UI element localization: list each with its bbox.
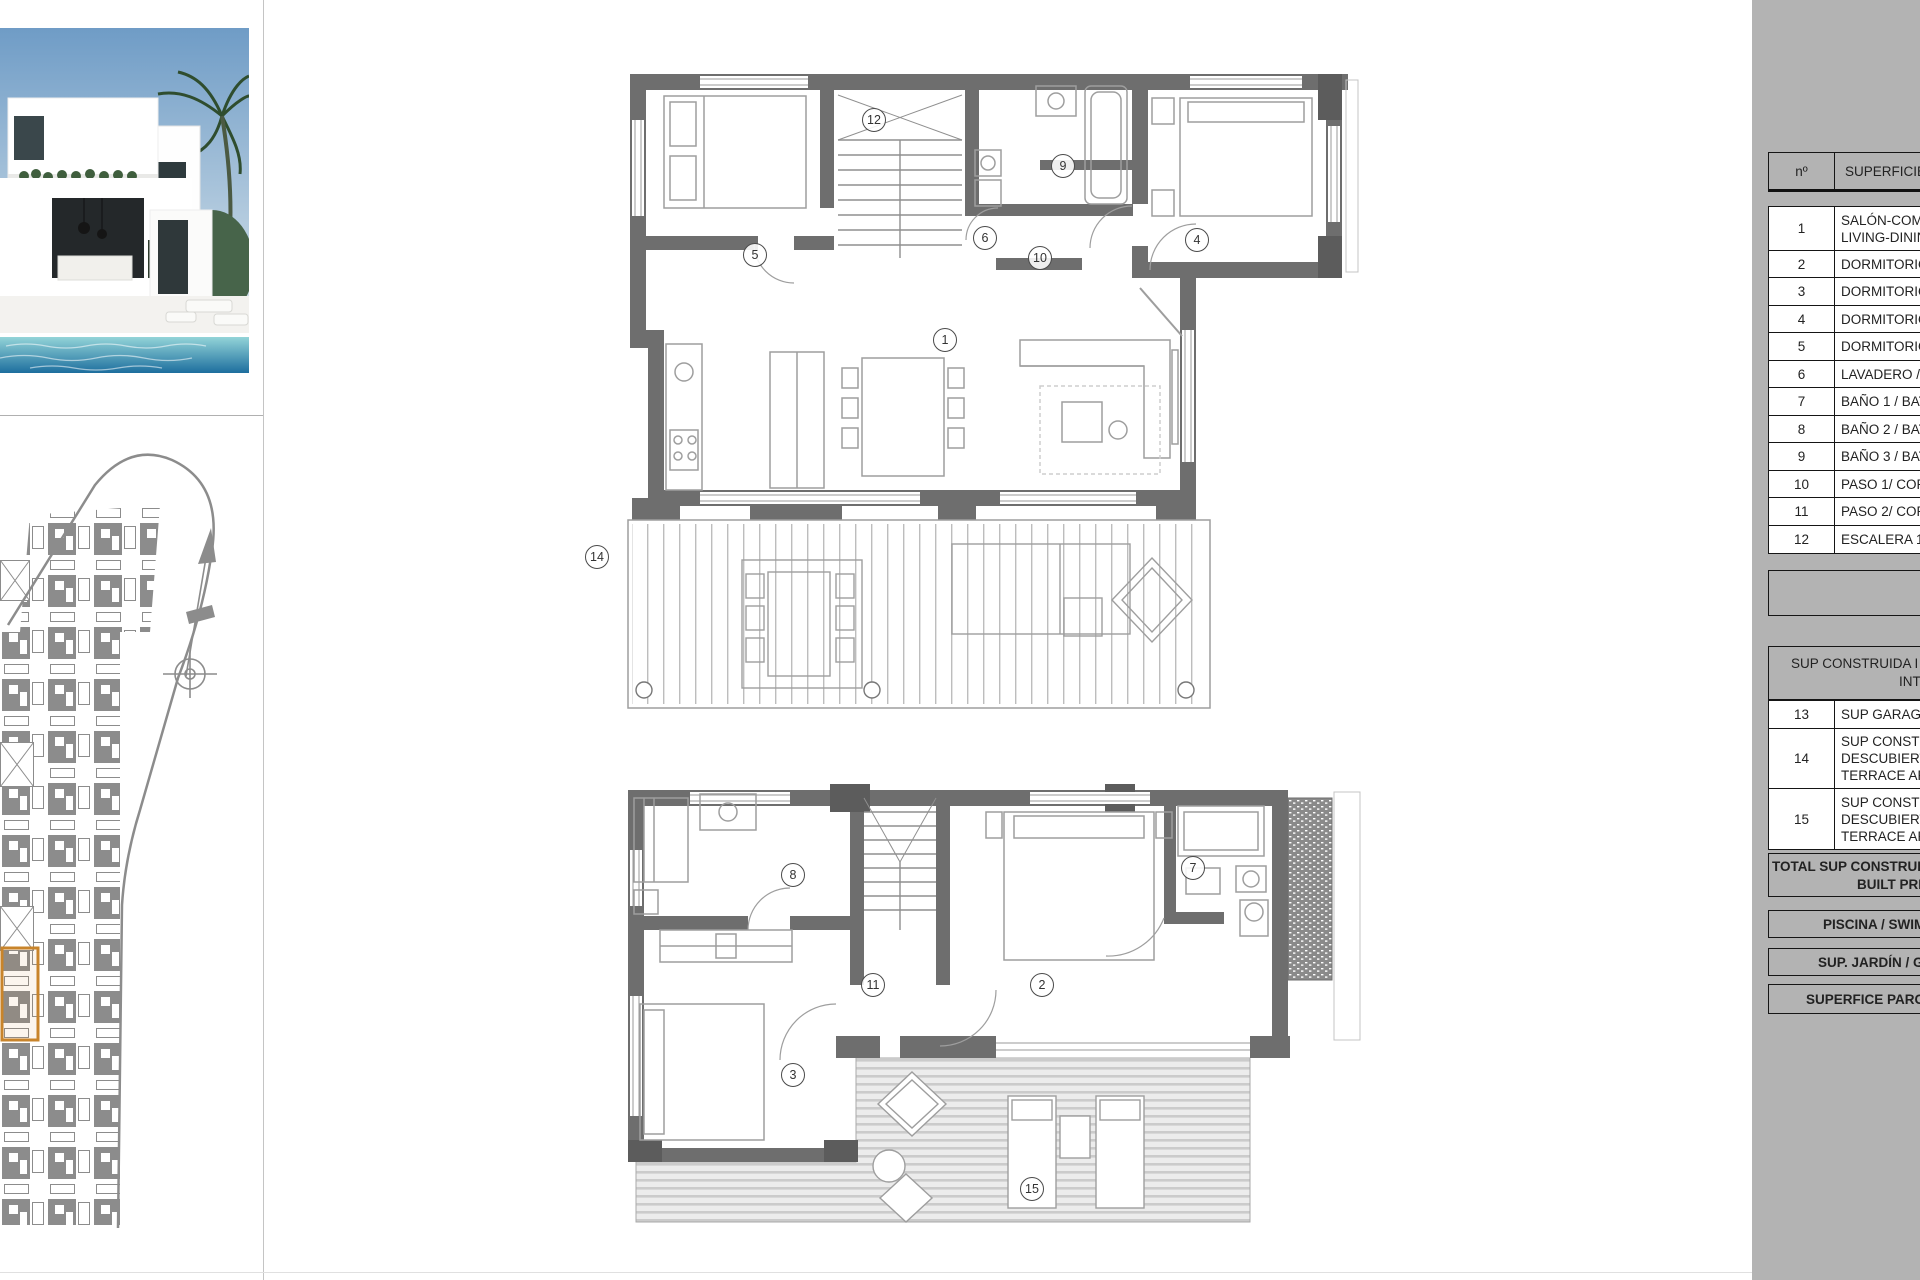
table-row: 2 DORMITORIO	[1768, 250, 1920, 279]
total-line2: BUILT PRIVA	[1769, 876, 1920, 894]
room-label-10: 10	[1028, 246, 1052, 270]
upper-windows	[632, 76, 1358, 504]
row-label: LAVADERO /	[1841, 366, 1920, 383]
room-label-11: 11	[861, 973, 885, 997]
upper-floor-plan	[600, 60, 1370, 720]
row-num: 6	[1769, 361, 1835, 388]
row-num: 5	[1769, 333, 1835, 360]
row-num: 11	[1769, 498, 1835, 525]
row-label: SUP CONSTRU	[1841, 794, 1920, 811]
row-num: 3	[1769, 278, 1835, 305]
row-label: SUP GARAGE	[1841, 706, 1920, 723]
row-label-2: LIVING-DININ	[1841, 229, 1920, 246]
garden-band: SUP. JARDÍN / G	[1768, 948, 1920, 976]
row-label-3: TERRACE ARE	[1841, 828, 1920, 845]
plot-band-label: SUPERFICE PARCE	[1769, 992, 1920, 1007]
table-row: 6 LAVADERO /	[1768, 360, 1920, 389]
row-label: ESCALERA 1 /	[1841, 531, 1920, 548]
room-label-5: 5	[743, 243, 767, 267]
row-num: 12	[1769, 526, 1835, 553]
row-label: DORMITORIO	[1841, 283, 1920, 300]
pool-band-label: PISCINA / SWIM	[1769, 917, 1920, 932]
row-label-3: TERRACE ARE	[1841, 767, 1920, 784]
table-spacer-band	[1768, 570, 1920, 616]
garden-band-label: SUP. JARDÍN / G	[1769, 955, 1920, 970]
row-num: 13	[1769, 701, 1835, 728]
row-label-2: DESCUBIERTA	[1841, 750, 1920, 767]
table-row: 9 BAÑO 3 / BAT	[1768, 442, 1920, 471]
right-panel	[1752, 0, 1920, 1280]
table-header: nº SUPERFICIE Ú	[1768, 152, 1920, 192]
room-label-3: 3	[781, 1063, 805, 1087]
row-num: 1	[1769, 207, 1835, 250]
room-label-14: 14	[585, 545, 609, 569]
plot-band: SUPERFICE PARCE	[1768, 984, 1920, 1014]
page-bottom-rule	[0, 1272, 1752, 1273]
table-row: 13 SUP GARAGE	[1768, 700, 1920, 729]
row-label: SUP CONSTRU	[1841, 733, 1920, 750]
villa-building	[0, 98, 212, 308]
room-label-7: 7	[1181, 856, 1205, 880]
side-pergola-strip	[1288, 798, 1332, 980]
row-num: 4	[1769, 306, 1835, 333]
left-column-divider	[0, 415, 263, 416]
pool-edge	[0, 333, 249, 337]
row-label: BAÑO 1 / BAT	[1841, 393, 1920, 410]
built-areas-table: 13 SUP GARAGE 14 SUP CONSTRU DESCUBIERTA…	[1768, 700, 1920, 850]
ground-floor-plan	[600, 780, 1390, 1240]
table-row: 8 BAÑO 2 / BAT	[1768, 415, 1920, 444]
area-table: 1 SALÓN-COM LIVING-DININ 2 DORMITORIO 3 …	[1768, 206, 1920, 554]
room-label-1: 1	[933, 328, 957, 352]
pool-band: PISCINA / SWIM	[1768, 910, 1920, 938]
built-area-section-header: SUP CONSTRUIDA I INTERIOR	[1768, 646, 1920, 700]
room-label-2: 2	[1030, 973, 1054, 997]
row-num: 10	[1769, 471, 1835, 498]
room-label-9: 9	[1051, 154, 1075, 178]
site-units-upper	[20, 505, 160, 632]
table-row: 14 SUP CONSTRU DESCUBIERTA TERRACE ARE	[1768, 728, 1920, 790]
row-label: DORMITORIO	[1841, 338, 1920, 355]
row-label: DORMITORIO	[1841, 256, 1920, 273]
table-row: 12 ESCALERA 1 /	[1768, 525, 1920, 554]
row-label: SALÓN-COM	[1841, 212, 1920, 229]
row-num: 7	[1769, 388, 1835, 415]
row-label: PASO 1/ COR	[1841, 476, 1920, 493]
section-header-line2: INTERIOR	[1769, 673, 1920, 691]
total-built-band: TOTAL SUP CONSTRUID BUILT PRIVA	[1768, 853, 1920, 897]
roof-terrace	[628, 520, 1210, 708]
row-num: 2	[1769, 251, 1835, 278]
row-label: PASO 2/ COR	[1841, 503, 1920, 520]
table-row: 4 DORMITORIO	[1768, 305, 1920, 334]
table-row: 3 DORMITORIO	[1768, 277, 1920, 306]
vertical-divider	[263, 0, 264, 1280]
col-label-header: SUPERFICIE Ú	[1835, 164, 1920, 179]
room-label-15: 15	[1020, 1177, 1044, 1201]
upper-furniture	[664, 86, 1312, 490]
plan-sheet: 12 9 6 10 4 5 1 14 8 7 11 2 3 15 nº SUPE…	[0, 0, 1920, 1280]
row-label: DORMITORIO	[1841, 311, 1920, 328]
table-row: 15 SUP CONSTRU DESCUBIERTA TERRACE ARE	[1768, 788, 1920, 850]
villa-photo	[0, 28, 249, 373]
row-num: 8	[1769, 416, 1835, 443]
table-row: 10 PASO 1/ COR	[1768, 470, 1920, 499]
room-label-12: 12	[862, 108, 886, 132]
table-row: 11 PASO 2/ COR	[1768, 497, 1920, 526]
site-plan	[0, 420, 263, 1235]
row-num: 14	[1769, 729, 1835, 789]
row-label-2: DESCUBIERTA	[1841, 811, 1920, 828]
row-label: BAÑO 3 / BAT	[1841, 448, 1920, 465]
row-label: BAÑO 2 / BAT	[1841, 421, 1920, 438]
col-num-header: nº	[1769, 153, 1835, 189]
room-label-6: 6	[973, 226, 997, 250]
section-header-line1: SUP CONSTRUIDA I	[1769, 655, 1920, 673]
upper-stairs	[838, 95, 962, 258]
table-row: 7 BAÑO 1 / BAT	[1768, 387, 1920, 416]
highlighted-unit[interactable]	[2, 948, 38, 1040]
room-label-4: 4	[1185, 228, 1209, 252]
ground-door-arcs	[748, 888, 1164, 1060]
table-row: 5 DORMITORIO	[1768, 332, 1920, 361]
upper-walls	[630, 74, 1348, 520]
north-arrow-icon	[163, 528, 217, 698]
room-label-8: 8	[781, 863, 805, 887]
ground-stairs	[864, 798, 936, 930]
row-num: 9	[1769, 443, 1835, 470]
table-row: 1 SALÓN-COM LIVING-DININ	[1768, 206, 1920, 251]
row-num: 15	[1769, 789, 1835, 849]
total-line1: TOTAL SUP CONSTRUID	[1769, 858, 1920, 876]
